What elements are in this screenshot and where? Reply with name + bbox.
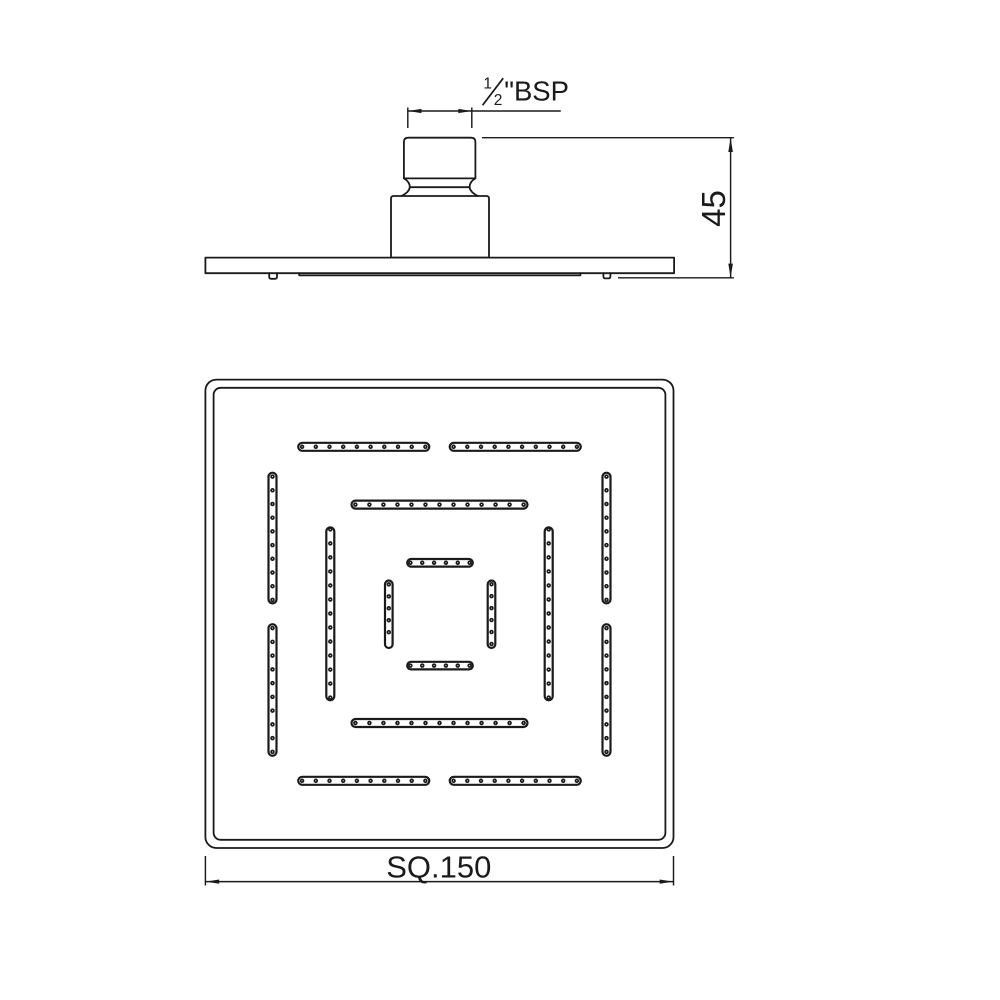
svg-text:1: 1	[483, 76, 492, 93]
svg-text:"BSP: "BSP	[504, 75, 569, 106]
svg-text:SQ.150: SQ.150	[386, 850, 491, 885]
svg-text:2: 2	[494, 92, 503, 109]
svg-text:45: 45	[695, 190, 732, 227]
